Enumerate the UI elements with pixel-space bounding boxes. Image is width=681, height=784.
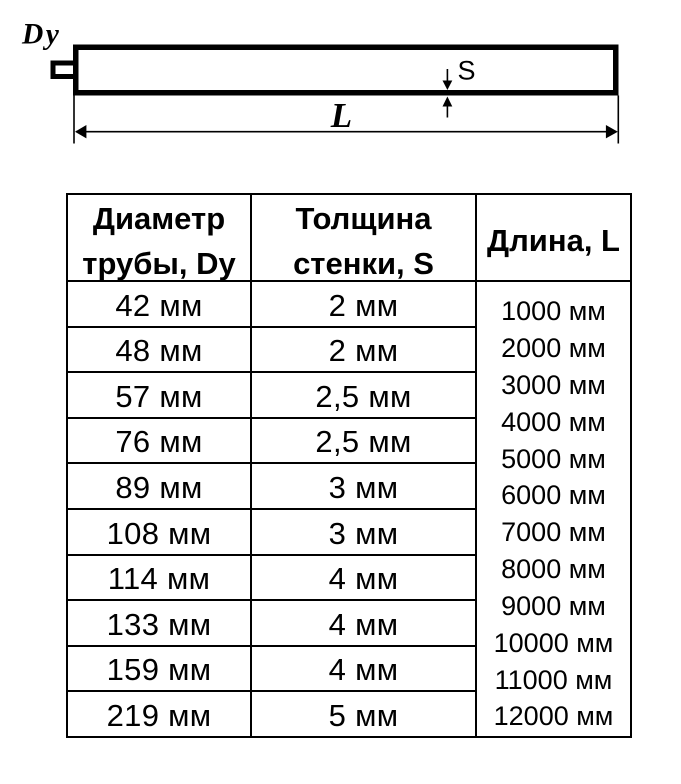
- svg-text:L: L: [330, 96, 352, 135]
- svg-text:Dy: Dy: [21, 19, 61, 51]
- svg-text:S: S: [458, 56, 476, 86]
